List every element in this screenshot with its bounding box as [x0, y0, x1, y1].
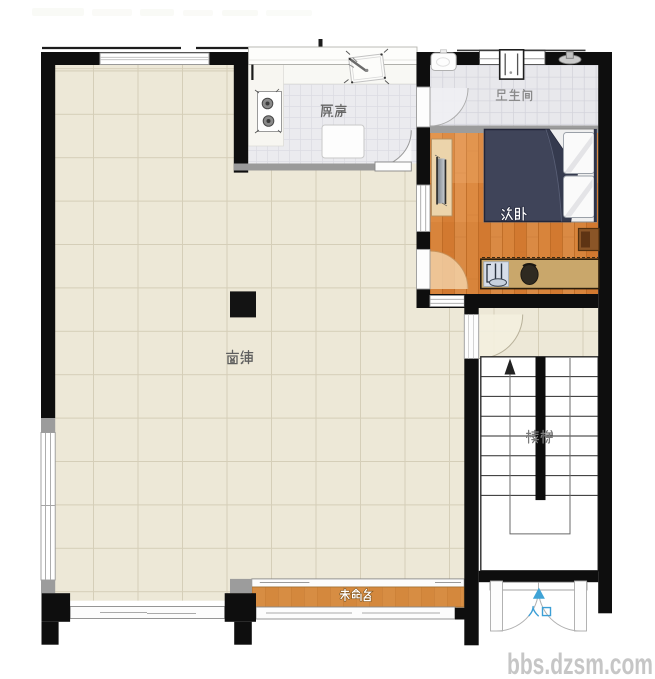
svg-text:bbs.dzsm.com: bbs.dzsm.com [507, 648, 653, 679]
